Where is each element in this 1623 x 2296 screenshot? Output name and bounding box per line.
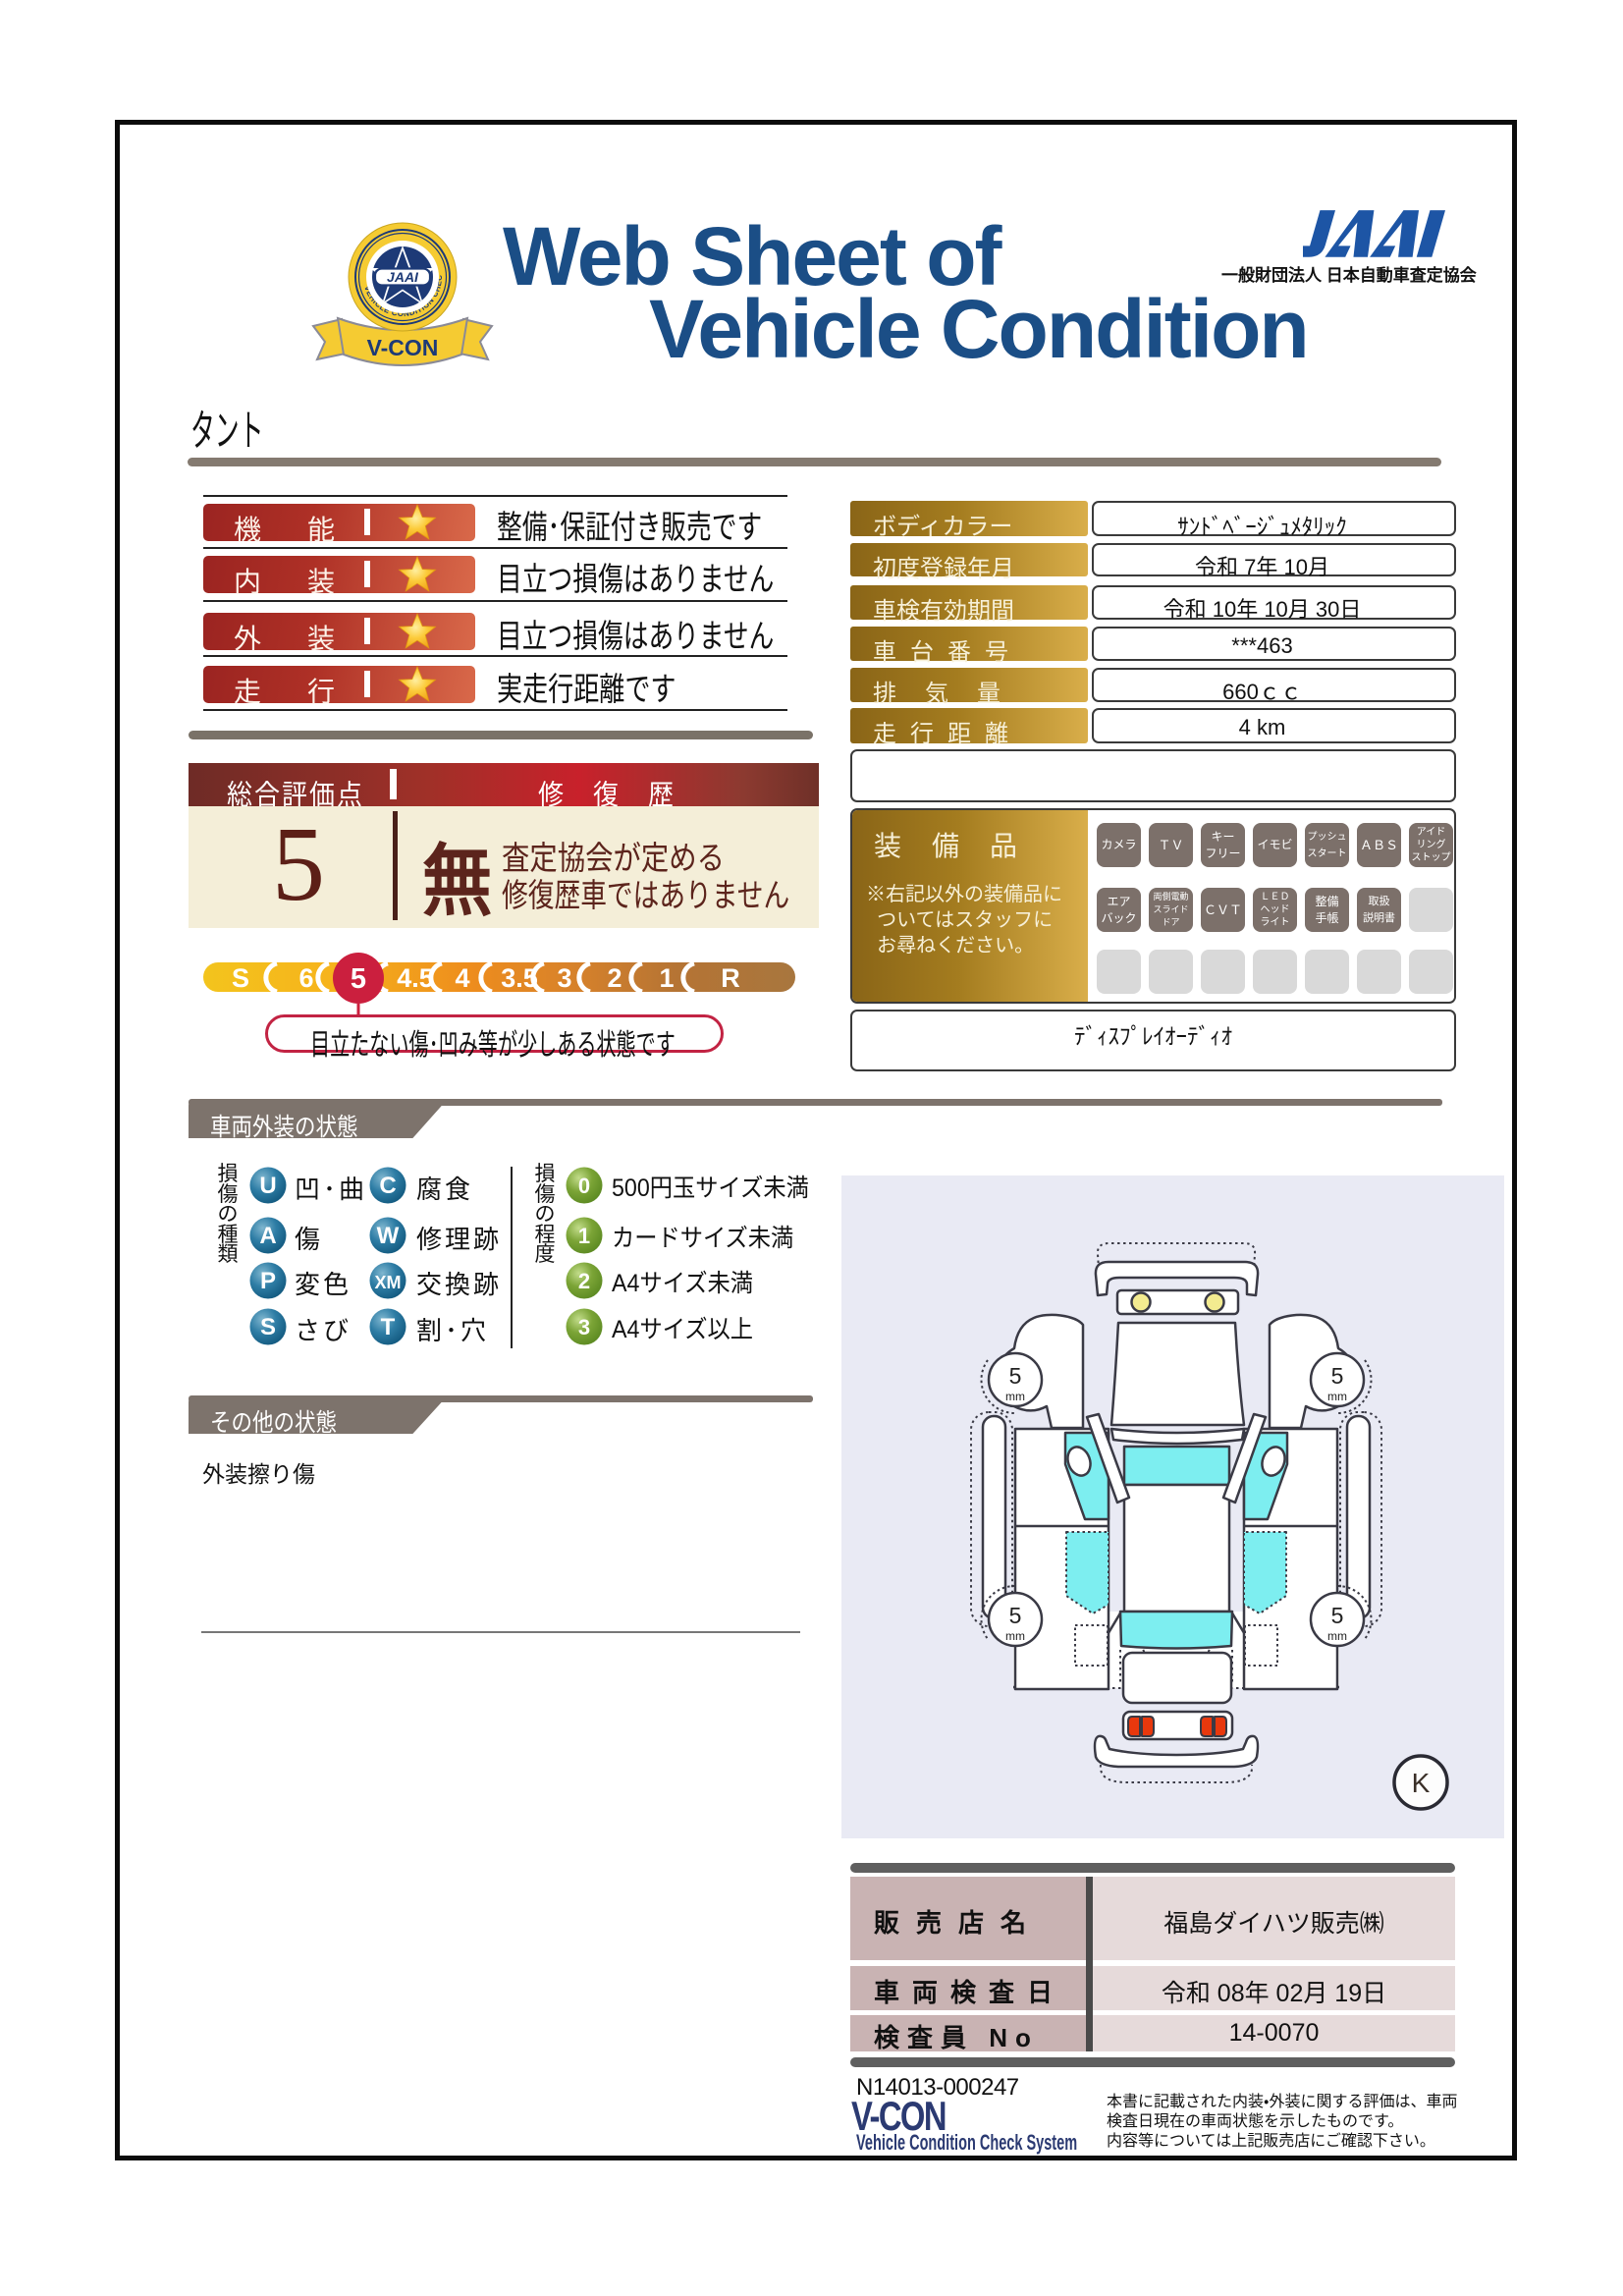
svg-text:A: A bbox=[259, 1223, 276, 1249]
svg-text:5: 5 bbox=[1331, 1363, 1344, 1389]
svg-text:5: 5 bbox=[351, 963, 366, 995]
svg-text:5: 5 bbox=[1009, 1603, 1022, 1628]
svg-text:3: 3 bbox=[578, 1315, 590, 1339]
svg-text:XM: XM bbox=[375, 1273, 402, 1292]
svg-text:4: 4 bbox=[455, 963, 469, 993]
svg-text:S: S bbox=[232, 963, 249, 993]
svg-text:T: T bbox=[381, 1314, 396, 1340]
svg-text:S: S bbox=[260, 1314, 276, 1340]
svg-text:mm: mm bbox=[1327, 1390, 1347, 1403]
svg-text:mm: mm bbox=[1005, 1629, 1025, 1643]
svg-text:mm: mm bbox=[1327, 1629, 1347, 1643]
svg-text:P: P bbox=[260, 1268, 276, 1294]
svg-text:mm: mm bbox=[1005, 1390, 1025, 1403]
svg-text:R: R bbox=[721, 963, 740, 993]
svg-text:JAAI: JAAI bbox=[387, 269, 419, 285]
svg-text:6: 6 bbox=[298, 963, 313, 993]
svg-text:5: 5 bbox=[1009, 1363, 1022, 1389]
svg-text:4.5: 4.5 bbox=[397, 963, 434, 993]
svg-text:2: 2 bbox=[607, 963, 622, 993]
svg-text:2: 2 bbox=[578, 1269, 590, 1293]
svg-text:C: C bbox=[379, 1173, 396, 1199]
svg-text:3.5: 3.5 bbox=[501, 963, 538, 993]
svg-text:U: U bbox=[259, 1173, 276, 1199]
svg-text:3: 3 bbox=[557, 963, 571, 993]
svg-text:V-CON: V-CON bbox=[367, 335, 439, 360]
svg-text:1: 1 bbox=[659, 963, 674, 993]
svg-text:0: 0 bbox=[578, 1174, 590, 1198]
svg-text:5: 5 bbox=[1331, 1603, 1344, 1628]
svg-text:1: 1 bbox=[578, 1224, 590, 1248]
svg-text:W: W bbox=[377, 1223, 400, 1249]
svg-text:K: K bbox=[1412, 1768, 1431, 1798]
